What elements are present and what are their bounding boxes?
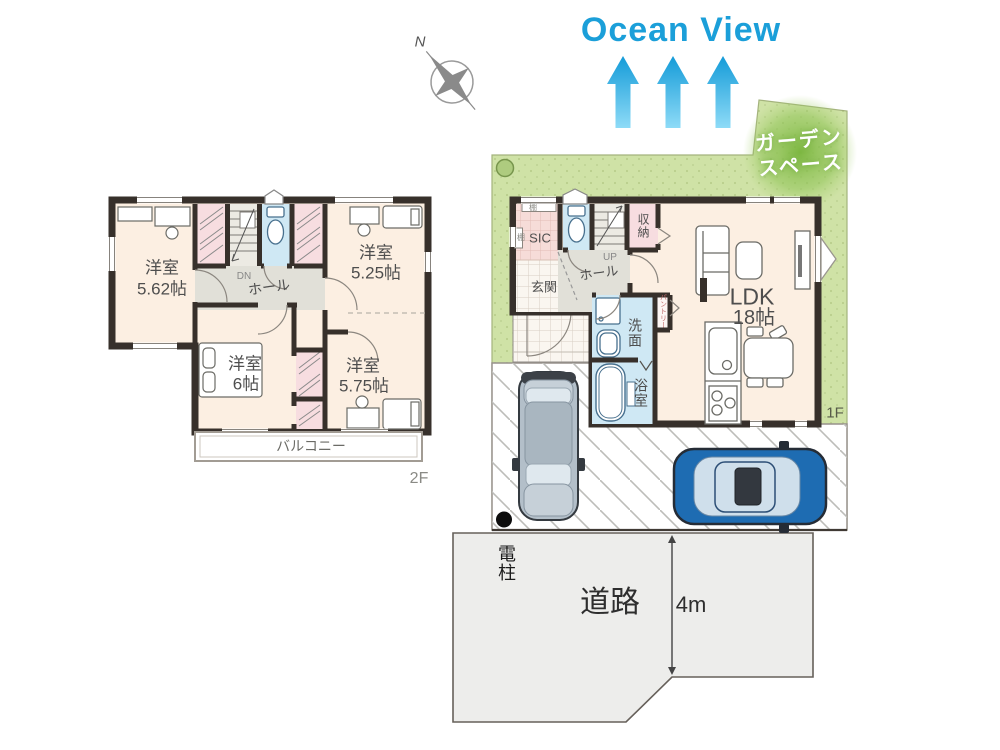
entrance-porch — [513, 312, 590, 362]
f2-room3-size: 6帖 — [233, 376, 259, 393]
ocean-view-arrows — [607, 56, 739, 128]
f2-room3-name: 洋室 — [228, 356, 262, 373]
site-plan-drawing — [0, 0, 1000, 750]
road-label: 道路 — [580, 588, 640, 618]
road-width-label: 4m — [676, 594, 707, 616]
f1-storage-label: 収納 — [637, 213, 649, 239]
f2-room4-name: 洋室 — [346, 358, 380, 375]
closet-2f-c — [296, 350, 323, 398]
toilet-icon-2f — [267, 207, 284, 244]
ocean-arrow-1 — [607, 56, 639, 128]
f1-shelf-label-2: 棚 — [517, 234, 525, 242]
kitchen-icons — [705, 322, 741, 424]
f1-sic-label: SIC — [529, 232, 551, 245]
f1-shelf-label-1: 棚 — [529, 204, 537, 212]
f2-stairs-dn-label: DN — [237, 272, 251, 282]
f2-room4-size: 5.75帖 — [339, 378, 389, 395]
f1-stairs-up-label: UP — [603, 253, 617, 263]
f2-room2-name: 洋室 — [359, 245, 393, 262]
toilet-vent-mark-2f — [265, 190, 283, 204]
f1-ldk-name: LDK — [730, 286, 775, 309]
utility-pole-dot — [496, 512, 512, 528]
ocean-arrow-3 — [707, 56, 739, 128]
utility-pole-label: 電柱 — [497, 544, 515, 582]
f2-room2-size: 5.25帖 — [351, 265, 401, 282]
ocean-arrow-2 — [657, 56, 689, 128]
floor-2f — [109, 190, 432, 461]
f1-bathroom-label: 浴室 — [634, 378, 648, 408]
f2-balcony-label: バルコニー — [276, 439, 346, 453]
f1-pantry-label: パントリー — [660, 294, 667, 329]
f2-room1-name: 洋室 — [145, 260, 179, 277]
floor-plan-canvas: Ocean View N 洋室 5.62帖 洋室 5.25帖 洋室 6帖 洋室 … — [0, 0, 1000, 750]
tv-board-icon — [795, 231, 810, 289]
car-gray — [512, 372, 585, 520]
compass-north-label: N — [415, 35, 426, 50]
tree-icon — [497, 160, 514, 177]
ocean-view-title: Ocean View — [581, 13, 781, 47]
f2-room1-size: 5.62帖 — [137, 281, 187, 298]
toilet-icon-1f — [568, 206, 585, 242]
f2-floor-label: 2F — [410, 471, 429, 487]
kitchen-wall-stub — [700, 278, 707, 302]
f1-ldk-size: 18帖 — [733, 308, 775, 328]
f1-washroom-label: 洗面 — [628, 318, 642, 348]
f1-floor-label: 1F — [826, 406, 844, 421]
car-blue — [674, 441, 826, 533]
coffee-table-icon — [736, 242, 762, 279]
f1-entrance-label: 玄関 — [531, 281, 557, 294]
